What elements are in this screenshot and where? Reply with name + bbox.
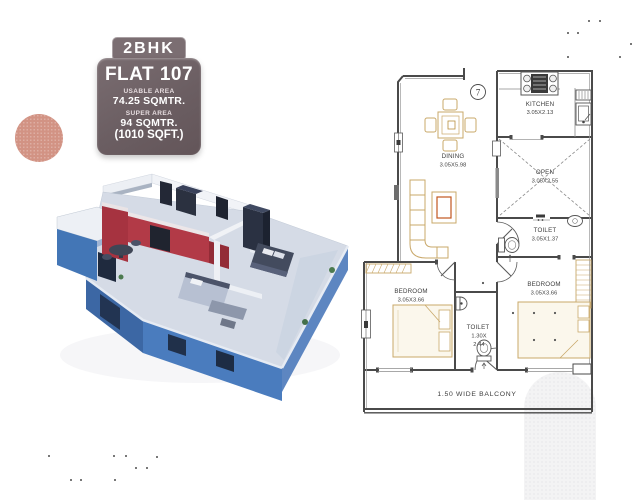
toilet-mid-dims2: 2.44 — [473, 342, 484, 348]
floorplan-3d-render — [57, 174, 348, 401]
bedroom-right-furniture — [482, 260, 591, 358]
bedroom-right-label: BEDROOM — [527, 281, 560, 288]
usable-area-value: 74.25 SQMTR. — [97, 95, 201, 107]
floorplan-2d: 7 KITCHEN 3.05X2.13 DINING 3.05X5.98 OPE… — [362, 68, 593, 413]
flat-info-card: FLAT 107 USABLE AREA 74.25 SQMTR. SUPER … — [97, 58, 201, 155]
toilet-mid-dims1: 1.30X — [471, 334, 486, 340]
flat-info-badge: 2BHK FLAT 107 USABLE AREA 74.25 SQMTR. S… — [97, 37, 201, 155]
toilet-right-dims: 3.05X1.37 — [532, 237, 559, 243]
bedroom-left-label: BEDROOM — [394, 288, 427, 295]
flat-number: FLAT 107 — [97, 65, 201, 85]
super-area-label: SUPER AREA — [97, 110, 201, 117]
balcony-label: 1.50 WIDE BALCONY — [437, 391, 516, 398]
unit-number: 7 — [476, 88, 481, 98]
toilet-mid-label: TOILET — [467, 324, 490, 331]
brochure-page: 2BHK FLAT 107 USABLE AREA 74.25 SQMTR. S… — [0, 0, 642, 500]
toilet-right-label: TOILET — [534, 227, 557, 234]
open-label: OPEN — [536, 169, 554, 176]
bedroom-right-dims: 3.05X3.66 — [531, 291, 558, 297]
kitchen-label: KITCHEN — [526, 101, 555, 108]
open-dims: 3.05X2.55 — [532, 179, 559, 185]
open-area-cross — [499, 139, 590, 216]
decor-pink-circle — [15, 114, 63, 162]
super-area-sqft: (1010 SQFT.) — [97, 129, 201, 142]
super-area-value: 94 SQMTR. — [97, 117, 201, 129]
balcony-corner-jamb — [573, 364, 591, 374]
dining-furniture — [410, 99, 476, 258]
dining-label: DINING — [442, 153, 465, 160]
bedroom-left-dims: 3.05X3.66 — [398, 298, 425, 304]
bhk-type-label: 2BHK — [123, 40, 175, 57]
kitchen-dims: 3.05X2.13 — [527, 110, 554, 116]
bedroom-left-furniture — [366, 264, 452, 357]
dining-dims: 3.05X5.98 — [440, 163, 467, 169]
usable-area-label: USABLE AREA — [97, 88, 201, 95]
sliding-doors — [378, 369, 573, 372]
